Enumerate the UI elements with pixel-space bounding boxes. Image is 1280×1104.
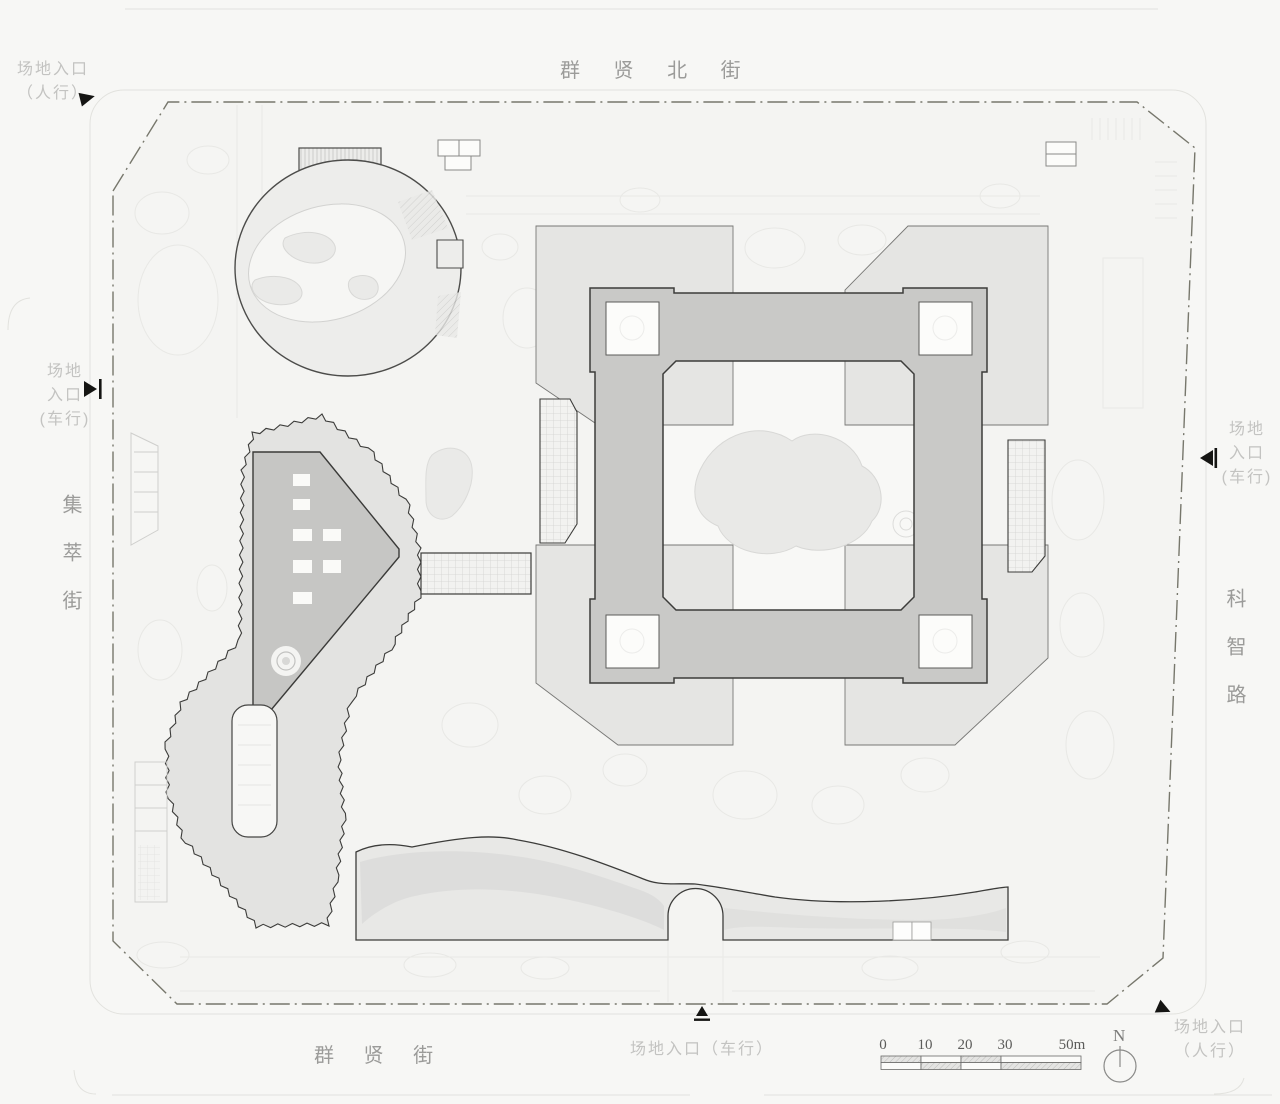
east-hatched-volume — [1008, 440, 1045, 572]
circular-skylight — [271, 646, 301, 676]
scale-tick-30: 30 — [998, 1037, 1013, 1054]
street-label-north: 群 贤 北 街 — [560, 54, 755, 83]
scale-tick-50m: 50m — [1059, 1037, 1086, 1054]
site-plan-drawing — [0, 0, 1280, 1104]
scale-tick-0: 0 — [879, 1037, 887, 1054]
entrance-label-south-vehicular: 场地入口（车行） — [617, 1038, 787, 1062]
scale-tick-20: 20 — [958, 1037, 973, 1054]
street-label-south: 群 贤 街 — [314, 1039, 445, 1068]
west-hatched-volume — [540, 399, 577, 543]
entrance-label-nw-pedestrian: 场地入口 （人行） — [10, 58, 96, 106]
entrance-label-east-vehicular: 场地 入口 (车行) — [1216, 418, 1278, 490]
compass-north-label: N — [1113, 1026, 1125, 1046]
entrance-marker-east-icon — [1200, 448, 1217, 468]
entrance-label-se-pedestrian: 场地入口 （人行） — [1166, 1016, 1254, 1064]
entrance-label-west-vehicular: 场地 入口 (车行) — [34, 360, 96, 432]
fan-stair-hatch2 — [435, 292, 461, 338]
street-label-west: 集萃街 — [56, 494, 85, 638]
north-compass-icon — [1104, 1046, 1136, 1082]
entrance-marker-south-icon — [694, 1006, 710, 1021]
scale-tick-10: 10 — [918, 1037, 933, 1054]
scale-bar — [881, 1056, 1081, 1070]
site-plan-canvas: 群 贤 北 街 群 贤 街 集萃街 科智路 场地入口 （人行） 场地 入口 (车… — [0, 0, 1280, 1104]
street-label-east: 科智路 — [1220, 588, 1249, 732]
bridge-connector — [421, 553, 531, 594]
